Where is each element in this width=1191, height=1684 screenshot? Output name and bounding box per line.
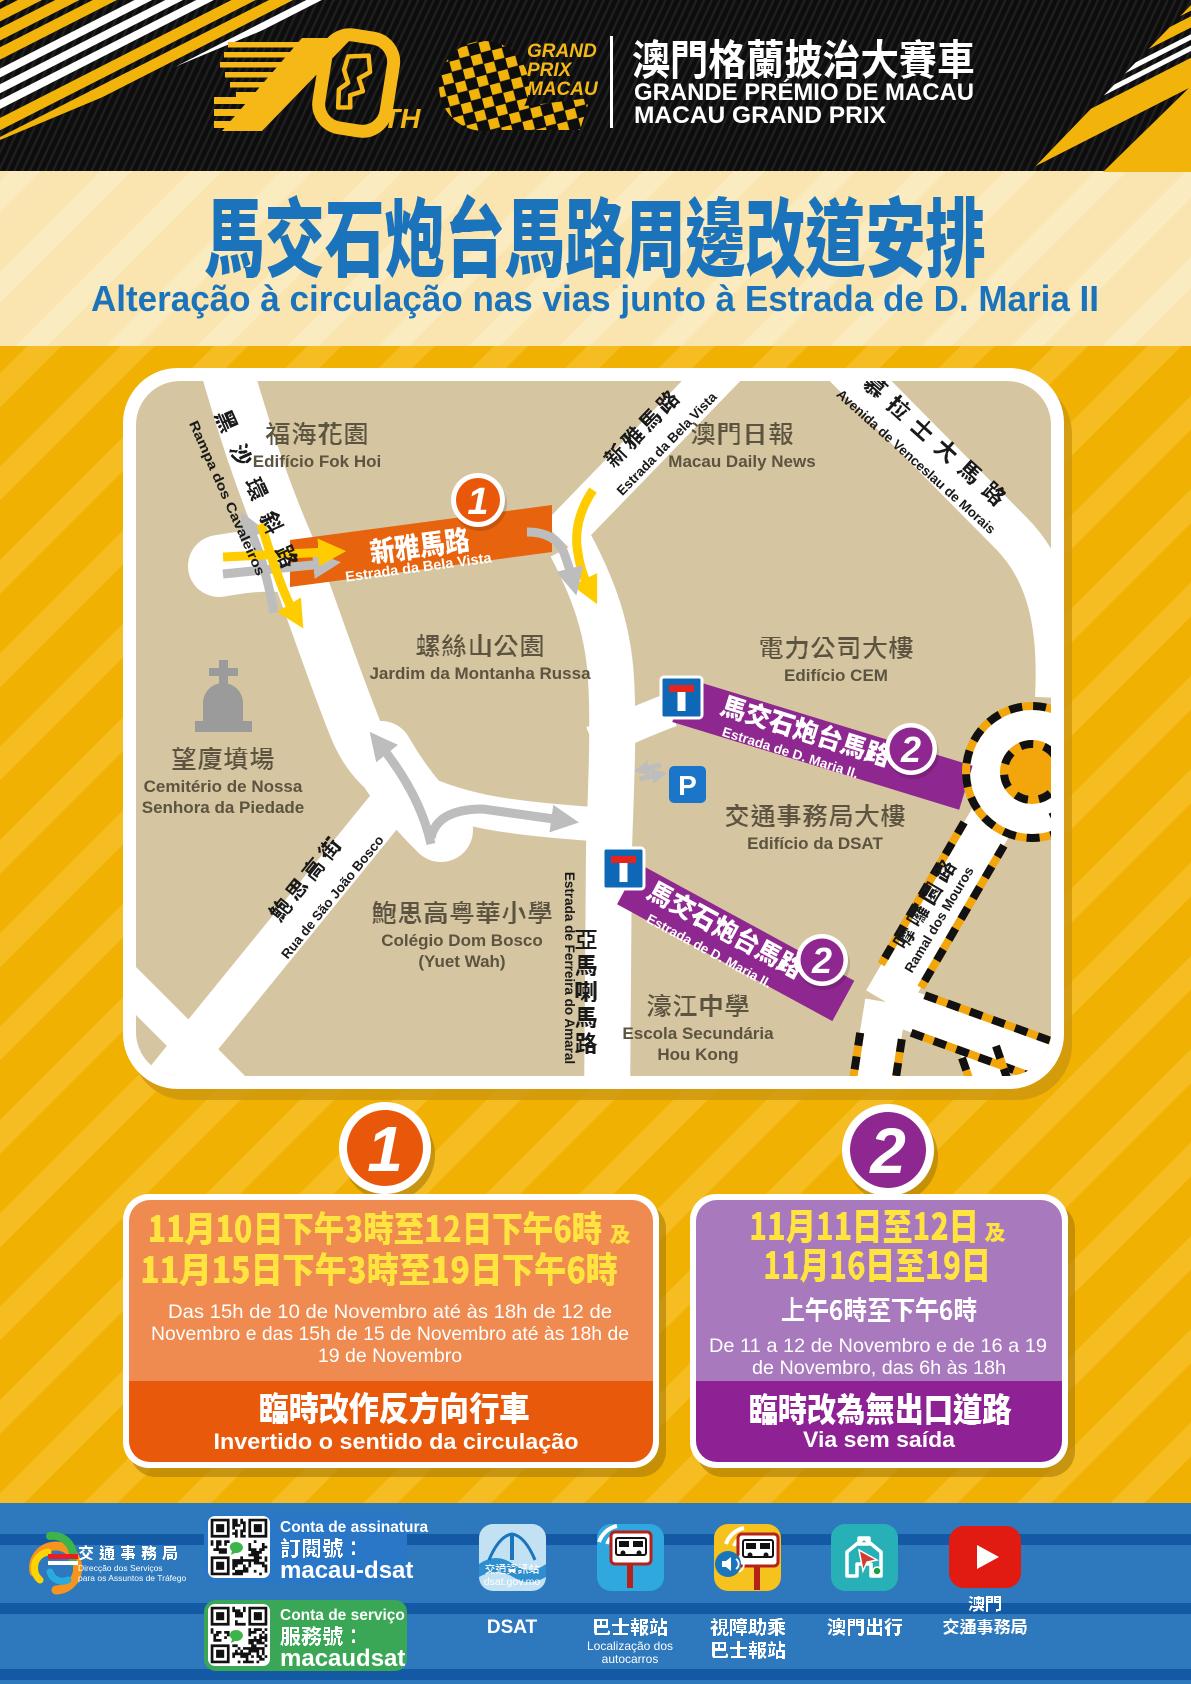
- svg-text:Estrada de Ferreira do Amaral: Estrada de Ferreira do Amaral: [562, 872, 577, 1064]
- svg-text:2: 2: [869, 1115, 906, 1187]
- svg-text:MACAU GRAND PRIX: MACAU GRAND PRIX: [634, 102, 886, 129]
- svg-text:Edifício da DSAT: Edifício da DSAT: [747, 834, 883, 853]
- svg-text:Alteração à circulação nas via: Alteração à circulação nas vias junto à …: [91, 278, 1099, 319]
- svg-text:1: 1: [367, 1113, 403, 1185]
- svg-text:DSAT: DSAT: [487, 1617, 538, 1638]
- svg-text:Jardim da Montanha Russa: Jardim da Montanha Russa: [369, 664, 591, 683]
- svg-text:Edifício Fok Hoi: Edifício Fok Hoi: [253, 452, 381, 471]
- svg-text:Invertido o sentido da circula: Invertido o sentido da circulação: [214, 1429, 579, 1454]
- svg-text:Escola Secundária: Escola Secundária: [622, 1024, 774, 1043]
- svg-text:19 de Novembro: 19 de Novembro: [318, 1345, 462, 1367]
- svg-text:Direcção dos Serviços: Direcção dos Serviços: [78, 1563, 163, 1573]
- svg-text:Localização dos: Localização dos: [587, 1639, 673, 1653]
- svg-text:dsat.gov.mo: dsat.gov.mo: [484, 1576, 541, 1588]
- svg-text:1: 1: [467, 481, 488, 523]
- svg-text:2: 2: [900, 729, 921, 770]
- svg-text:Edifício CEM: Edifício CEM: [784, 666, 888, 685]
- svg-text:(Yuet Wah): (Yuet Wah): [418, 952, 505, 971]
- svg-text:Colégio Dom Bosco: Colégio Dom Bosco: [381, 931, 543, 950]
- svg-text:TH: TH: [383, 103, 421, 134]
- svg-text:GRAND: GRAND: [527, 41, 597, 62]
- svg-text:Novembro e das 15h de 15 de No: Novembro e das 15h de 15 de Novembro até…: [151, 1323, 629, 1345]
- svg-text:Cemitério de Nossa: Cemitério de Nossa: [144, 777, 303, 796]
- svg-text:Conta de assinatura: Conta de assinatura: [280, 1519, 429, 1536]
- svg-text:macaudsat: macaudsat: [280, 1645, 405, 1672]
- svg-text:P: P: [678, 770, 697, 801]
- svg-text:MACAU: MACAU: [527, 79, 599, 100]
- svg-text:para os Assuntos de Tráfego: para os Assuntos de Tráfego: [78, 1573, 186, 1583]
- svg-text:de Novembro, das 6h às 18h: de Novembro, das 6h às 18h: [752, 1357, 1006, 1379]
- svg-text:autocarros: autocarros: [602, 1652, 659, 1666]
- svg-text:Via sem saída: Via sem saída: [803, 1427, 956, 1452]
- svg-text:Hou Kong: Hou Kong: [657, 1045, 738, 1064]
- svg-text:Macau Daily News: Macau Daily News: [668, 452, 815, 471]
- svg-text:De 11 a 12 de Novembro e de 16: De 11 a 12 de Novembro e de 16 a 19: [709, 1335, 1047, 1357]
- svg-text:Das 15h de 10 de Novembro até: Das 15h de 10 de Novembro até às 18h de …: [168, 1301, 612, 1323]
- svg-text:Senhora da Piedade: Senhora da Piedade: [142, 798, 305, 817]
- svg-text:PRIX: PRIX: [527, 60, 573, 81]
- svg-text:Conta de serviço: Conta de serviço: [280, 1607, 405, 1624]
- svg-text:2: 2: [811, 940, 832, 981]
- svg-text:macau-dsat: macau-dsat: [280, 1557, 413, 1584]
